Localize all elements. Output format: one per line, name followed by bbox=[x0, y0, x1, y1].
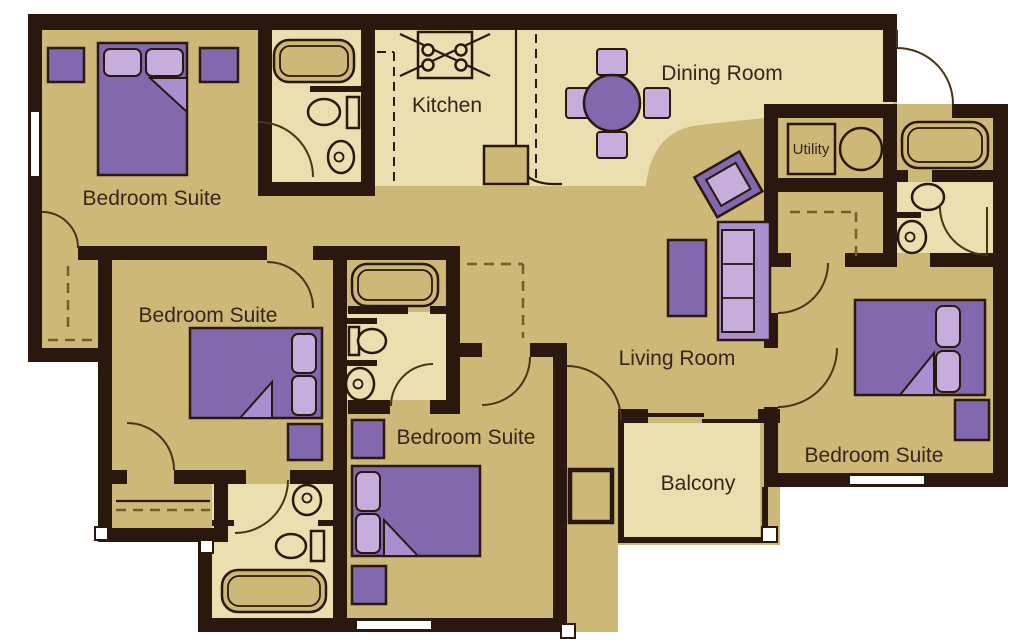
wall-closet2-right bbox=[214, 484, 228, 542]
floor-plan: Bedroom Suite Kitchen Dining Room Utilit… bbox=[0, 0, 1024, 644]
wall-bedroom3-right bbox=[553, 343, 567, 632]
pillow-icon2 bbox=[146, 49, 183, 76]
wall-bedroom2-bottom-c bbox=[290, 470, 347, 484]
dining-chair-icon2 bbox=[597, 132, 627, 158]
sink-icon bbox=[328, 141, 354, 173]
wall-bathroom4-left bbox=[883, 104, 897, 267]
pillow-icon8 bbox=[936, 351, 960, 392]
wall-bathroom1-bottom bbox=[258, 182, 375, 196]
wall-balcony-top-a bbox=[621, 409, 648, 423]
label-bedroom-suite-2: Bedroom Suite bbox=[139, 304, 278, 327]
label-balcony: Balcony bbox=[661, 472, 736, 495]
wall-tub4-stub-b bbox=[932, 170, 993, 182]
corner-post-icon3 bbox=[561, 624, 575, 638]
dishwasher-icon bbox=[484, 146, 528, 184]
wall-balcony-top-b bbox=[758, 409, 780, 423]
wall-right bbox=[993, 104, 1008, 487]
wall-bathroom2-bottom-a bbox=[348, 400, 390, 414]
dining-table-icon bbox=[584, 75, 640, 131]
bath3-divider-b bbox=[318, 520, 333, 526]
label-bedroom-suite-4: Bedroom Suite bbox=[805, 444, 944, 467]
nightstand-icon bbox=[48, 48, 84, 82]
wall-left-mid bbox=[98, 246, 112, 542]
corner-post-icon2 bbox=[200, 540, 213, 553]
nightstand-icon2 bbox=[200, 48, 238, 82]
toilet-icon2 bbox=[358, 329, 386, 353]
hall-closet-box bbox=[570, 470, 612, 522]
wall-entry-jamb bbox=[883, 14, 897, 102]
label-living-room: Living Room bbox=[619, 347, 736, 370]
bath1-divider bbox=[310, 86, 361, 92]
wall-hall-a bbox=[446, 343, 482, 357]
wall-bedroom1-right bbox=[258, 30, 272, 196]
pillow-icon4 bbox=[292, 376, 316, 415]
floor-plan-canvas: Bedroom Suite Kitchen Dining Room Utilit… bbox=[0, 0, 1024, 644]
bath2-divider-a bbox=[347, 318, 377, 324]
nightstand-icon4 bbox=[352, 420, 384, 458]
toilet-icon4 bbox=[912, 184, 944, 210]
pillow-icon5 bbox=[356, 472, 380, 511]
window-left-icon2 bbox=[39, 112, 42, 176]
wall-bathroom2-bottom-b bbox=[430, 400, 460, 414]
wall-bedroom2-right bbox=[333, 246, 347, 618]
wall-top bbox=[28, 14, 897, 30]
wall-tub4-stub-a bbox=[893, 170, 908, 182]
wall-bathroom2-right bbox=[446, 246, 460, 414]
wall-utility-top bbox=[764, 104, 897, 118]
pillow-icon3 bbox=[292, 334, 316, 373]
corner-post-icon bbox=[95, 527, 108, 540]
label-utility: Utility bbox=[793, 141, 830, 158]
nightstand-icon3 bbox=[288, 424, 322, 460]
window-bedroom4-icon bbox=[850, 473, 924, 476]
nightstand-icon5 bbox=[352, 566, 386, 604]
window-bottom-icon2 bbox=[357, 629, 431, 632]
wall-left-lower bbox=[28, 176, 42, 362]
window-bottom-icon bbox=[357, 618, 431, 621]
sink-icon2 bbox=[346, 368, 374, 400]
window-bedroom4-icon2 bbox=[850, 484, 924, 487]
wall-bedroom4-top-b bbox=[845, 253, 897, 267]
bath2-tub-stub-b bbox=[430, 306, 446, 314]
sofa-cushions bbox=[722, 230, 754, 332]
sliding-door-icon2 bbox=[702, 419, 758, 423]
bath2-divider-b bbox=[347, 360, 377, 366]
burner-icon2 bbox=[423, 60, 434, 71]
label-dining-room: Dining Room bbox=[661, 62, 782, 85]
dining-chair-icon4 bbox=[644, 88, 670, 118]
label-bedroom-suite-1: Bedroom Suite bbox=[83, 187, 222, 210]
coffee-table-icon bbox=[668, 240, 706, 316]
burner-icon3 bbox=[456, 45, 467, 56]
burner-icon bbox=[423, 45, 434, 56]
toilet-tank-icon bbox=[347, 97, 359, 128]
toilet-icon bbox=[308, 99, 340, 125]
balcony-rail-left bbox=[618, 409, 624, 543]
balcony-rail-bottom bbox=[618, 537, 766, 543]
nightstand-icon6 bbox=[955, 400, 989, 440]
wall-bedroom2-bottom-a bbox=[98, 470, 127, 484]
label-bedroom-suite-3: Bedroom Suite bbox=[397, 426, 536, 449]
toilet-icon3 bbox=[276, 534, 306, 558]
bath4-divider bbox=[897, 212, 921, 218]
toilet-tank-icon3 bbox=[311, 531, 324, 561]
window-left-icon bbox=[28, 112, 31, 176]
corner-post-icon4 bbox=[762, 527, 777, 542]
entry-door-swing-icon bbox=[897, 48, 953, 104]
pillow-icon6 bbox=[356, 514, 380, 553]
sink-icon4 bbox=[898, 221, 926, 253]
pillow-icon7 bbox=[936, 306, 960, 347]
pillow-icon bbox=[104, 49, 141, 76]
wall-left-upper bbox=[28, 14, 42, 112]
wall-bottomleft-step bbox=[98, 528, 214, 542]
dining-chair-icon bbox=[597, 49, 627, 75]
sliding-door-icon bbox=[648, 413, 704, 417]
sink-icon3 bbox=[293, 485, 321, 515]
label-kitchen: Kitchen bbox=[412, 94, 482, 117]
wall-utility-bottom bbox=[764, 178, 897, 192]
wall-kitchen-left bbox=[361, 30, 375, 196]
wall-bedroom2-bottom-b bbox=[174, 470, 246, 484]
wall-bedroom1-bottom bbox=[78, 246, 267, 260]
dryer-icon bbox=[840, 128, 882, 170]
bath3-divider-a bbox=[212, 520, 234, 526]
burner-icon4 bbox=[456, 60, 467, 71]
